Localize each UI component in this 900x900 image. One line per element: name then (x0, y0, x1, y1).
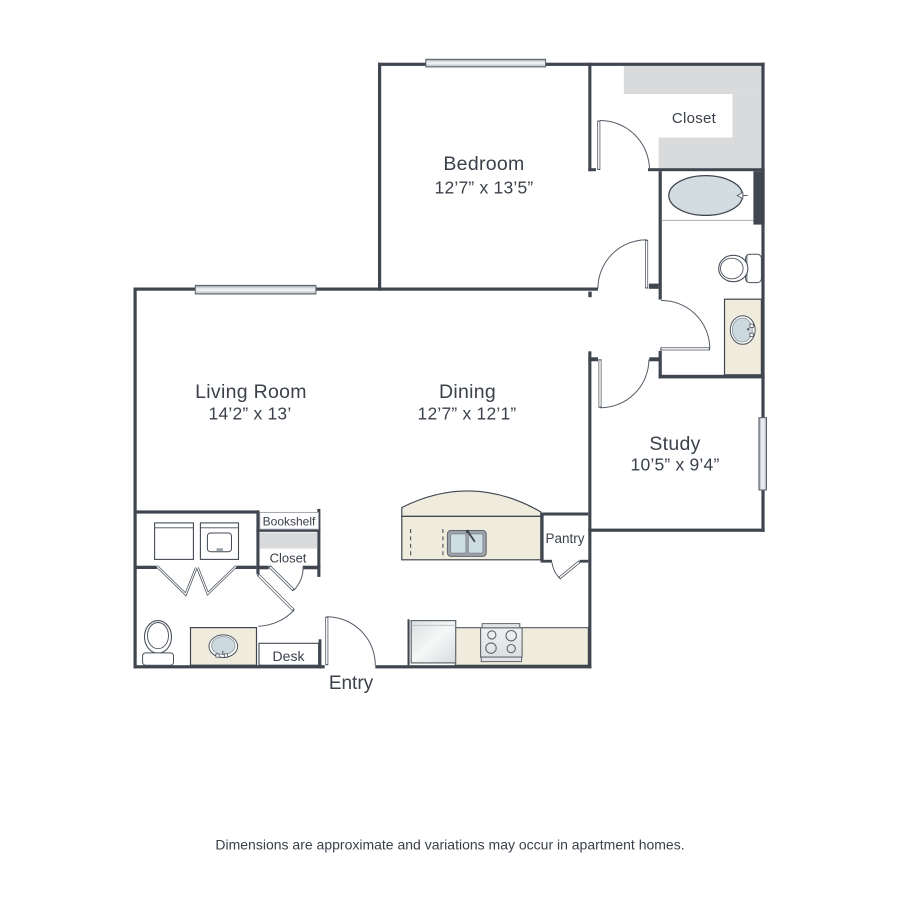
svg-text:Study: Study (649, 433, 700, 455)
svg-text:Closet: Closet (672, 110, 717, 127)
svg-text:12’7” x 12’1”: 12’7” x 12’1” (418, 404, 517, 424)
svg-text:Bookshelf: Bookshelf (263, 515, 316, 529)
svg-text:10’5” x 9’4”: 10’5” x 9’4” (631, 455, 720, 475)
svg-text:Closet: Closet (270, 550, 307, 565)
svg-text:14’2” x 13’: 14’2” x 13’ (209, 404, 292, 424)
svg-text:Dining: Dining (439, 381, 496, 403)
svg-text:Entry: Entry (329, 673, 374, 694)
svg-text:Living Room: Living Room (195, 381, 307, 403)
svg-text:12’7” x 13’5”: 12’7” x 13’5” (435, 178, 534, 198)
svg-text:Desk: Desk (273, 648, 306, 664)
svg-text:Dimensions are approximate and: Dimensions are approximate and variation… (215, 837, 684, 853)
svg-text:Bedroom: Bedroom (443, 153, 524, 175)
svg-text:Pantry: Pantry (545, 531, 584, 546)
